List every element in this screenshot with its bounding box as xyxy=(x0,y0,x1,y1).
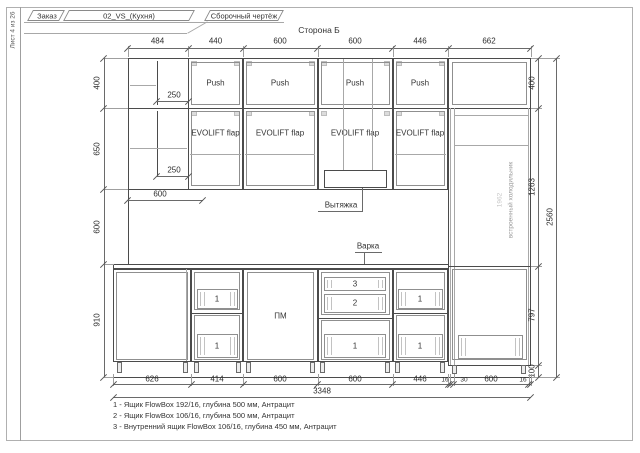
view-title: Сторона Б xyxy=(298,25,339,35)
dishwasher-label: ПМ xyxy=(274,311,286,320)
dim-left-910: 910 xyxy=(93,313,102,326)
base-626-door xyxy=(116,272,188,360)
tall-cab-side-left xyxy=(450,108,451,365)
flap-600a-shelf xyxy=(245,154,315,155)
note-drawer-3: 3 - Внутренний ящик FlowBox 106/16, глуб… xyxy=(113,422,337,431)
dim-right-1263: 1263 xyxy=(528,178,537,196)
evolift-label-446: EVOLIFT flap xyxy=(396,129,444,138)
dim-top-484: 484 xyxy=(151,37,164,46)
cooktop-callout-leader xyxy=(364,252,365,264)
sheet-number-label: Лист 4 из 26 xyxy=(10,12,17,49)
dim-line-bottom-total xyxy=(113,397,531,398)
flap-440-front xyxy=(191,111,240,186)
fridge-note: встроенный холодильник xyxy=(508,162,515,238)
flap-446-shelf xyxy=(395,154,446,155)
tall-cab-top-division xyxy=(448,108,531,109)
unit-446-drawer-bottom-num: 1 xyxy=(418,341,422,350)
dim-bottom-626: 626 xyxy=(145,375,158,384)
cooktop-callout-underline xyxy=(355,252,382,253)
dim-top-662: 662 xyxy=(482,37,495,46)
unit-446-drawer-top-num: 1 xyxy=(418,294,422,303)
cabinet-leg xyxy=(440,362,445,373)
cabinet-leg xyxy=(521,365,526,374)
tall-cab-side-right xyxy=(528,108,529,365)
cabinet-leg xyxy=(395,362,400,373)
project-name: 02_VS_(Кухня) xyxy=(103,12,155,21)
order-label: Заказ xyxy=(37,12,57,21)
dim-line-250b xyxy=(157,176,189,177)
dim-250b: 250 xyxy=(167,166,180,175)
dim-bottom-600a: 600 xyxy=(273,375,286,384)
cabinet-leg xyxy=(385,362,390,373)
cabinet-leg xyxy=(194,362,199,373)
hood-callout: Вытяжка xyxy=(325,201,358,210)
dim-bottom-3348: 3348 xyxy=(313,387,331,396)
dim-bottom-446: 446 xyxy=(413,375,426,384)
tall-cab-mid-division xyxy=(448,266,531,267)
dim-bottom-30: 30 xyxy=(460,376,467,383)
tall-cab-top-door xyxy=(452,62,527,105)
dim-bottom-414: 414 xyxy=(210,375,223,384)
upper-484-shelf-b xyxy=(130,148,187,149)
cabinet-leg xyxy=(320,362,325,373)
upper-cabinet-484-bottom xyxy=(128,108,189,190)
stamp-line-upper xyxy=(24,22,284,23)
cabinet-leg xyxy=(183,362,188,373)
push-label-446: Push xyxy=(411,79,429,88)
dim-600-inner: 600 xyxy=(153,190,166,199)
push-label-600a: Push xyxy=(271,79,289,88)
flap-446-front xyxy=(396,111,446,186)
cabinet-leg xyxy=(236,362,241,373)
unit-414-drawer-top-num: 1 xyxy=(215,294,219,303)
left-strip-line xyxy=(20,7,21,441)
dim-bottom-16a: 16 xyxy=(441,376,448,383)
flap-440-shelf xyxy=(190,154,241,155)
cabinet-leg xyxy=(310,362,315,373)
cabinet-leg xyxy=(246,362,251,373)
flap-600a-front xyxy=(246,111,315,186)
unit-414-front-divider xyxy=(191,313,243,314)
cooktop-unit-drawer-3-num: 3 xyxy=(353,279,357,288)
push-label-hood: Push xyxy=(346,79,364,88)
evolift-label-600a: EVOLIFT flap xyxy=(256,129,304,138)
dim-left-650: 650 xyxy=(93,142,102,155)
dim-line-right-total xyxy=(556,58,557,377)
cabinet-leg xyxy=(452,365,457,374)
dim-right-400: 400 xyxy=(528,76,537,89)
upper-484-shelf-a xyxy=(130,85,156,86)
cooktop-unit-drawer-1-num: 1 xyxy=(353,342,357,351)
fridge-top-panel-line xyxy=(454,115,529,116)
dim-line-600-inner xyxy=(128,200,203,201)
drawing-sheet: Лист 4 из 26 Заказ 02_VS_(Кухня) Сборочн… xyxy=(0,0,640,453)
dim-top-440: 440 xyxy=(209,37,222,46)
floor-line xyxy=(106,377,536,378)
dim-line-250a xyxy=(157,101,189,102)
cooktop-callout: Варка xyxy=(357,242,379,251)
hood-callout-leader xyxy=(362,188,363,211)
note-drawer-2: 2 - Ящик FlowBox 106/16, глубина 500 мм,… xyxy=(113,411,295,420)
dim-top-446: 446 xyxy=(413,37,426,46)
base-626-side-line xyxy=(186,269,187,361)
note-drawer-1: 1 - Ящик FlowBox 192/16, глубина 500 мм,… xyxy=(113,400,295,409)
dim-right-2560: 2560 xyxy=(546,208,555,226)
stamp-line-lower xyxy=(24,33,187,34)
dim-bottom-600b: 600 xyxy=(348,375,361,384)
cooktop-unit-drawer-2-num: 2 xyxy=(353,299,357,308)
dim-left-600: 600 xyxy=(93,220,102,233)
upper-484-divider-bottom xyxy=(157,111,158,176)
hood-body xyxy=(324,170,387,188)
fridge-niche-height: 1962 xyxy=(497,193,504,207)
document-type: Сборочный чертёж xyxy=(211,12,277,21)
evolift-label-440: EVOLIFT flap xyxy=(191,129,239,138)
hood-chimney-right xyxy=(372,59,373,170)
dim-250a: 250 xyxy=(167,91,180,100)
dim-left-400: 400 xyxy=(93,76,102,89)
dim-right-797: 797 xyxy=(528,308,537,321)
cooktop-unit-front-divider xyxy=(318,318,393,319)
hood-callout-underline xyxy=(318,211,363,212)
dim-top-600b: 600 xyxy=(348,37,361,46)
push-label-440: Push xyxy=(206,79,224,88)
fridge-shelf-line xyxy=(454,145,529,146)
dim-bottom-16b: 16 xyxy=(519,376,526,383)
tall-cab-inner-drawer xyxy=(458,335,523,359)
dim-bottom-600c: 600 xyxy=(484,375,497,384)
dim-top-600a: 600 xyxy=(273,37,286,46)
unit-414-drawer-bottom-num: 1 xyxy=(215,341,219,350)
hood-chimney-left xyxy=(343,59,344,170)
cabinet-leg xyxy=(117,362,122,373)
unit-446-front-divider xyxy=(393,313,449,314)
dim-line-bottom xyxy=(113,384,531,385)
